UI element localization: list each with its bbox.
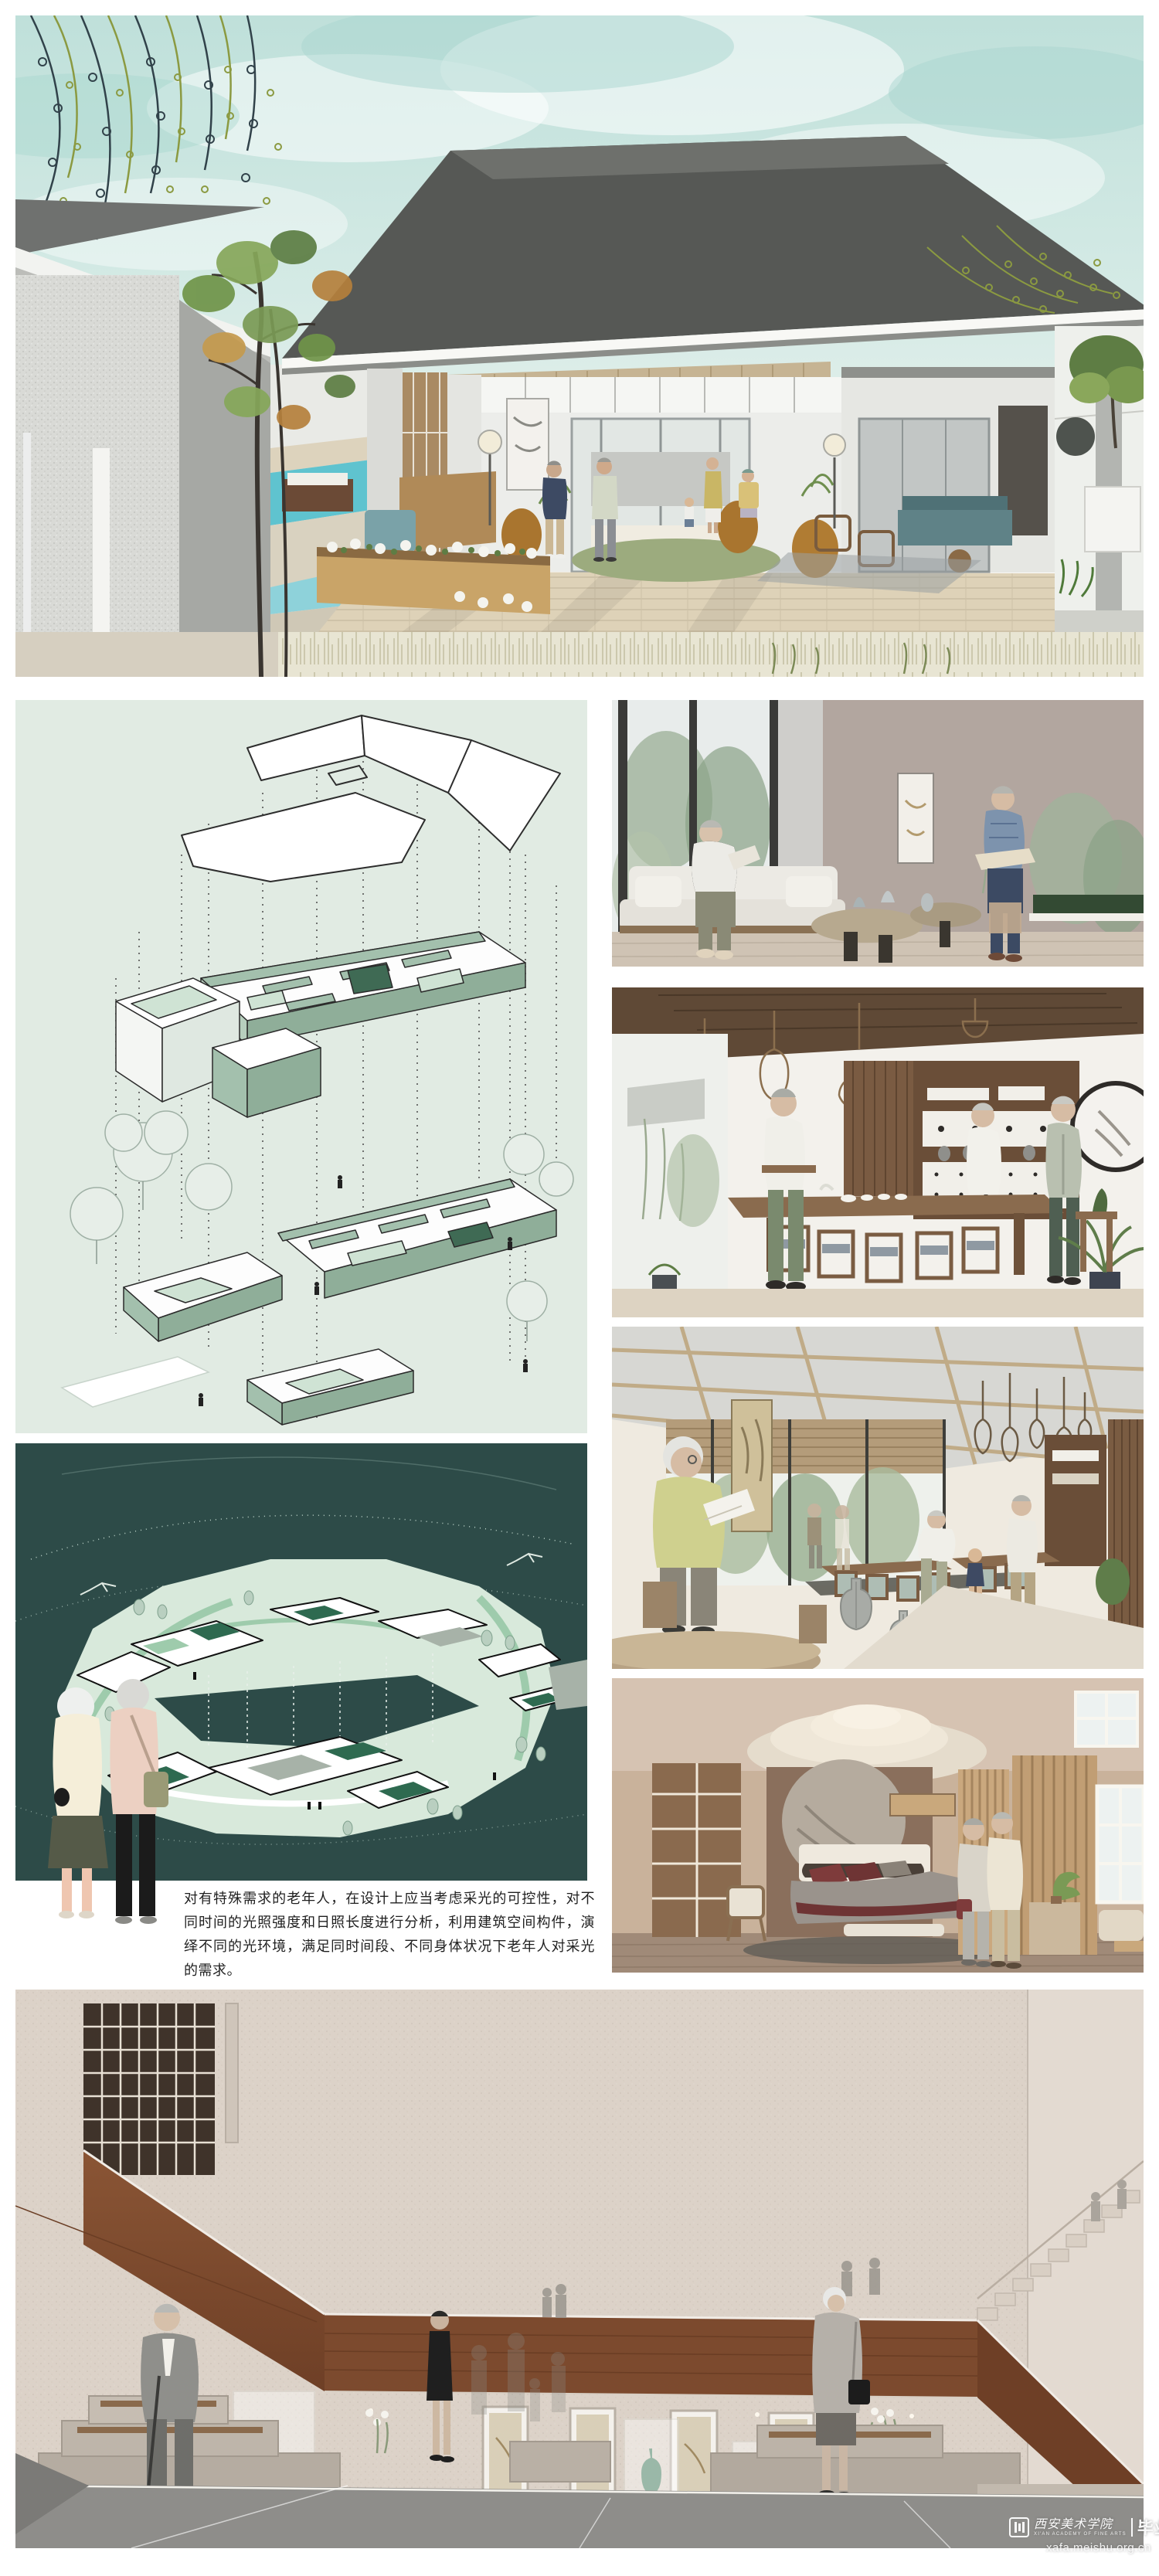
sliding-doors (859, 419, 989, 572)
design-statement: 对有特殊需求的老年人，在设计上应当考虑采光的可控性，对不同时间的光照强度和日照长… (184, 1887, 595, 1983)
teal-sofa (898, 510, 1012, 545)
ground-strip (15, 632, 1144, 677)
watermark-url: xafa.meishu.org.cn (1009, 2541, 1159, 2554)
exhibition-label: 毕业展 (1137, 2516, 1159, 2539)
tea-room-graphic (612, 987, 1144, 1317)
exterior-render-graphic (15, 15, 1144, 677)
white-planter (1085, 487, 1140, 552)
bedroom-render (612, 1678, 1144, 1973)
watermark: 西安美术学院 XI'AN ACADEMY OF FINE ARTS 毕业展 xa… (1009, 2516, 1159, 2554)
watermark-row: 西安美术学院 XI'AN ACADEMY OF FINE ARTS 毕业展 (1009, 2516, 1159, 2539)
school-name-en: XI'AN ACADEMY OF FINE ARTS (1034, 2532, 1127, 2537)
handbag (848, 2380, 870, 2404)
school-name-block: 西安美术学院 XI'AN ACADEMY OF FINE ARTS (1034, 2518, 1127, 2537)
lounge-render (612, 700, 1144, 967)
communal-hall-render (612, 1327, 1144, 1669)
site-plan-illustration (15, 1443, 587, 1932)
bed-bench (844, 1924, 944, 1936)
floor (612, 1289, 1144, 1317)
exhibition-hall-render (15, 1990, 1144, 2548)
planter-boxes (317, 539, 550, 614)
person-toddler (685, 498, 694, 527)
exhibition-hall-graphic (15, 1990, 1144, 2548)
floor-lamp (478, 430, 501, 454)
potted-plant (1096, 1558, 1130, 1605)
wall-artwork (507, 399, 549, 490)
xafa-logo-icon (1009, 2517, 1029, 2537)
communal-hall-graphic (612, 1327, 1144, 1669)
person-elderly-woman (48, 1687, 108, 1918)
axon-graphic (15, 700, 587, 1433)
landscape-art (890, 1794, 955, 1816)
round-wall-art (1072, 1083, 1144, 1170)
wall-slot (226, 2003, 238, 2143)
tea-room-render (612, 987, 1144, 1317)
courtyard-view (612, 1034, 728, 1317)
exploded-axonometric-diagram (15, 700, 587, 1433)
lounge-graphic (612, 700, 1144, 967)
school-name: 西安美术学院 (1034, 2518, 1127, 2530)
wall-disc-ornament (1056, 417, 1095, 456)
presentation-board: 对有特殊需求的老年人，在设计上应当考虑采光的可控性，对不同时间的光照强度和日照长… (0, 0, 1159, 2576)
framed-art (898, 773, 933, 863)
watermark-divider (1131, 2518, 1133, 2537)
site-plan-graphic (15, 1443, 587, 1932)
log-stool (643, 1582, 677, 1628)
floor-lamp (824, 434, 845, 456)
exterior-courtyard-render (15, 15, 1144, 677)
bedroom-graphic (612, 1678, 1144, 1973)
upper-window-grid (83, 2003, 215, 2175)
